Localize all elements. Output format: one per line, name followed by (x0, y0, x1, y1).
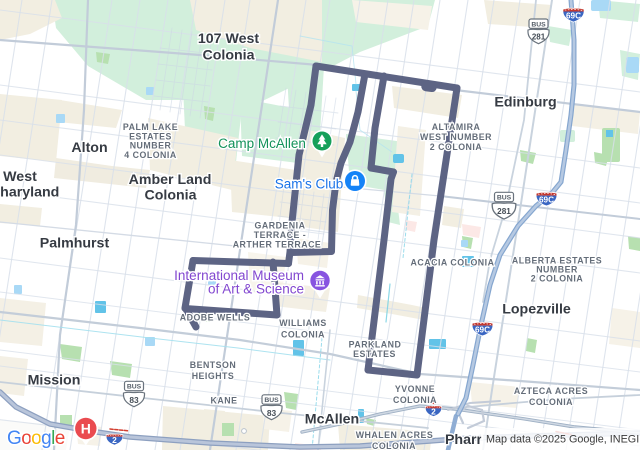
svg-text:4 COLONIA: 4 COLONIA (124, 150, 177, 160)
svg-text:ESTATES: ESTATES (353, 349, 396, 359)
svg-text:69C: 69C (566, 12, 581, 21)
svg-text:COLONIA: COLONIA (372, 441, 416, 450)
svg-text:GARDENIA: GARDENIA (255, 221, 306, 231)
svg-text:ARTHER TERRACE: ARTHER TERRACE (233, 240, 322, 250)
svg-text:West: West (3, 169, 37, 185)
svg-text:Colonia: Colonia (144, 188, 196, 204)
svg-text:WILLIAMS: WILLIAMS (279, 318, 327, 328)
svg-text:ADOBE WELLS: ADOBE WELLS (180, 313, 251, 323)
svg-text:69C: 69C (539, 195, 554, 204)
svg-text:BENTSON: BENTSON (190, 360, 237, 370)
svg-text:Pharr: Pharr (445, 432, 483, 448)
svg-text:83: 83 (267, 408, 277, 418)
svg-text:281: 281 (532, 33, 546, 42)
svg-text:KANE: KANE (211, 396, 238, 406)
svg-text:Amber Land: Amber Land (129, 172, 212, 188)
svg-text:Palmhurst: Palmhurst (40, 236, 110, 252)
svg-text:Sam's Club: Sam's Club (275, 177, 344, 192)
svg-text:COLONIA: COLONIA (281, 330, 325, 340)
svg-text:69C: 69C (475, 325, 490, 334)
svg-text:281: 281 (497, 207, 511, 216)
svg-text:2 COLONIA: 2 COLONIA (430, 142, 483, 152)
svg-text:Alton: Alton (71, 140, 107, 156)
svg-text:TERRACE -: TERRACE - (254, 230, 306, 240)
svg-text:Sharyland: Sharyland (0, 185, 59, 201)
svg-text:of Art & Science: of Art & Science (208, 282, 304, 297)
svg-text:Map data ©2025 Google, INEGI: Map data ©2025 Google, INEGI (486, 434, 639, 446)
svg-text:H: H (81, 421, 91, 437)
svg-text:Mission: Mission (28, 373, 81, 389)
svg-text:PARKLAND: PARKLAND (349, 340, 402, 350)
svg-text:PALM LAKE: PALM LAKE (123, 122, 178, 132)
svg-text:COLONIA: COLONIA (393, 395, 437, 405)
svg-text:2: 2 (431, 406, 436, 416)
svg-text:107 West: 107 West (198, 31, 260, 47)
svg-text:WEST NUMBER: WEST NUMBER (420, 132, 492, 142)
svg-text:Lopezville: Lopezville (502, 302, 571, 318)
svg-text:HEIGHTS: HEIGHTS (192, 371, 235, 381)
svg-text:Google: Google (7, 428, 65, 449)
svg-text:ALTAMIRA: ALTAMIRA (432, 122, 481, 132)
svg-text:2 COLONIA: 2 COLONIA (531, 274, 584, 284)
svg-text:NUMBER: NUMBER (130, 141, 172, 151)
svg-text:WHALEN ACRES: WHALEN ACRES (356, 430, 434, 440)
svg-text:ACACIA COLONIA: ACACIA COLONIA (411, 258, 495, 268)
svg-text:2: 2 (112, 435, 117, 445)
svg-text:Colonia: Colonia (202, 48, 254, 64)
svg-text:Edinburg: Edinburg (494, 95, 556, 111)
svg-text:Camp McAllen: Camp McAllen (218, 136, 306, 151)
svg-text:AZTECA ACRES: AZTECA ACRES (514, 386, 588, 396)
svg-text:COLONIA: COLONIA (529, 397, 573, 407)
svg-text:83: 83 (129, 395, 139, 405)
svg-text:McAllen: McAllen (305, 412, 359, 428)
svg-text:YVONNE: YVONNE (395, 384, 435, 394)
